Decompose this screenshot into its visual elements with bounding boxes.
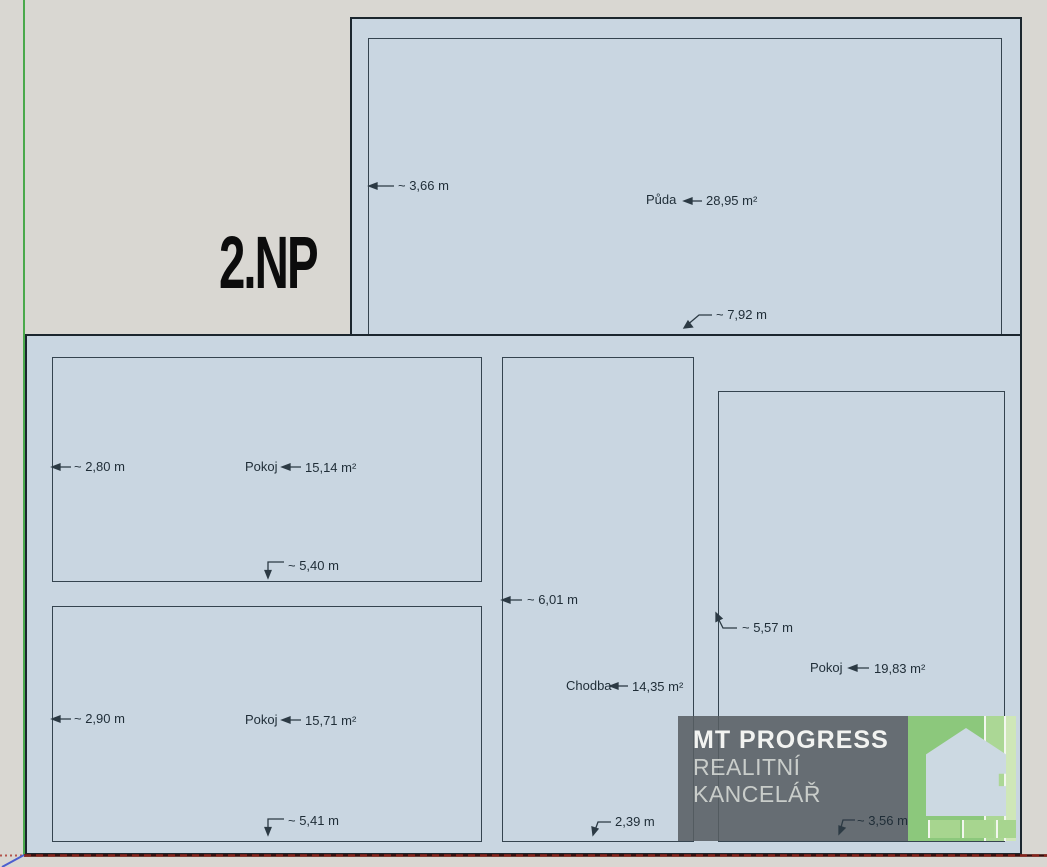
room-label-pokoj1: Pokoj	[245, 460, 278, 474]
dim-label-pokoj2-width: ~ 5,41 m	[288, 814, 339, 828]
logo-tile	[962, 820, 994, 838]
dim-label-pokoj3-height: ~ 5,57 m	[742, 621, 793, 635]
area-label-pokoj3: 19,83 m²	[874, 662, 925, 676]
room-puda-outline	[368, 38, 1002, 336]
logo-tile	[996, 820, 1016, 838]
area-label-pokoj2: 15,71 m²	[305, 714, 356, 728]
dim-label-chodba-height: ~ 6,01 m	[527, 593, 578, 607]
room-label-pokoj2: Pokoj	[245, 713, 278, 727]
dim-label-chodba-width: 2,39 m	[615, 815, 655, 829]
dim-label-puda-height: ~ 3,66 m	[398, 179, 449, 193]
floor-title: 2.NP	[219, 228, 317, 298]
watermark-brand: MT PROGRESS	[693, 726, 908, 754]
logo-tile	[928, 820, 960, 838]
area-label-pokoj1: 15,14 m²	[305, 461, 356, 475]
floorplan-canvas: MT PROGRESS REALITNÍ KANCELÁŘ	[0, 0, 1047, 867]
dim-label-puda-width: ~ 7,92 m	[716, 308, 767, 322]
room-label-puda: Půda	[646, 193, 676, 207]
attic-block-outline	[350, 17, 1022, 336]
watermark-logo-panel	[908, 716, 1016, 841]
dim-label-pokoj1-height: ~ 2,80 m	[74, 460, 125, 474]
area-label-puda: 28,95 m²	[706, 194, 757, 208]
room-label-chodba: Chodba	[566, 679, 612, 693]
blue-axis	[2, 855, 24, 867]
dim-label-pokoj2-height: ~ 2,90 m	[74, 712, 125, 726]
area-label-chodba: 14,35 m²	[632, 680, 683, 694]
watermark-subtitle: REALITNÍ KANCELÁŘ	[693, 754, 908, 808]
dim-label-pokoj1-width: ~ 5,40 m	[288, 559, 339, 573]
room-label-pokoj3: Pokoj	[810, 661, 843, 675]
dim-label-pokoj3-width: ~ 3,56 m	[857, 814, 908, 828]
